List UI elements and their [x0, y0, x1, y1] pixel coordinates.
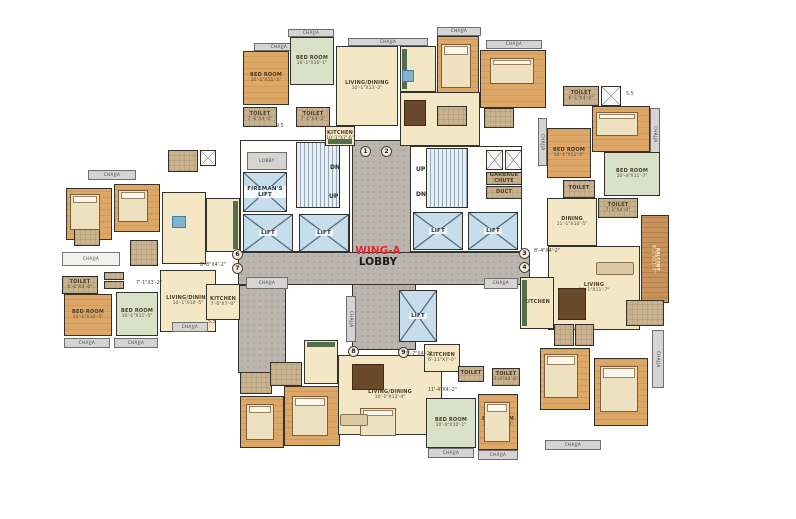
- chajja: CHAJJA: [114, 338, 158, 348]
- chajja: CHAJJA: [484, 278, 518, 289]
- chajja: CHAJJA: [64, 338, 110, 348]
- chajja: CHAJJA: [428, 448, 474, 458]
- dress: [626, 300, 664, 326]
- chajja: CHAJJA: [172, 322, 208, 332]
- flat-entrance-marker: 1: [360, 146, 371, 157]
- kitchen: KITCHEN10'-1"X7'-6": [325, 126, 355, 146]
- wardrobe: [104, 281, 124, 289]
- sofa-icon: [340, 414, 368, 426]
- toilet: TOILET7'-0"X4'-0": [492, 368, 520, 386]
- dimension-label: 8'-8"X4'-2": [200, 263, 226, 268]
- bedroom: BED ROOM10'-1"X11'-5": [243, 51, 289, 105]
- flat-entrance-marker: 3: [519, 248, 530, 259]
- lift-1: LIFT: [243, 214, 293, 252]
- chajja: CHAJJA: [652, 330, 664, 388]
- duct-box: [505, 150, 522, 170]
- duct-box: [200, 150, 216, 166]
- btable-icon: [402, 70, 414, 82]
- lift-5: LIFT: [399, 290, 437, 342]
- staircase-right: [426, 148, 468, 208]
- toilet: [554, 324, 574, 346]
- sofa-icon: [596, 262, 634, 275]
- bed-icon: [600, 366, 638, 412]
- flat-entrance-marker: 6: [232, 249, 243, 260]
- kitchen: KITCHEN6'-11"X7'-0": [424, 344, 460, 372]
- dining: DINING11'-1"X10'-5": [547, 198, 597, 246]
- toilet: [74, 228, 100, 246]
- chajja: CHAJJA: [538, 118, 547, 166]
- btable-icon: [172, 216, 186, 228]
- toilet: TOILET7'-1"X4'-0": [598, 198, 638, 218]
- chajja: CHAJJA: [545, 440, 601, 450]
- toilet: TOILET7'-6"X4'-0": [243, 107, 277, 127]
- dimension-label: 5.5: [626, 92, 634, 97]
- kitchen: [206, 198, 240, 252]
- kitchen-counter: [522, 280, 527, 326]
- duct-box: [486, 150, 503, 170]
- lift-4: LIFT: [468, 212, 518, 250]
- kitchen: [400, 46, 436, 92]
- duct-box: [601, 86, 621, 106]
- chajja: CHAJJA: [486, 40, 542, 49]
- dimension-label: 8'-4"X4'-2": [534, 249, 560, 254]
- garbage-chute: GARBAGE CHUTE: [486, 172, 522, 185]
- wardrobe: [104, 272, 124, 280]
- chajja: CHAJJA: [246, 277, 288, 289]
- chajja: CHAJJA: [88, 170, 136, 180]
- floor-plan: LOBBYFIREMAN'S LIFTLIFTLIFTGARBAGE CHUTE…: [0, 0, 796, 519]
- dimension-label: UP: [329, 193, 338, 200]
- chajja: CHAJJA: [478, 450, 518, 460]
- entrance-lobby: [168, 150, 198, 172]
- bed-icon: [490, 58, 534, 84]
- wing-title: WING-A LOBBY: [352, 246, 404, 268]
- dimension-label: 9.5: [276, 124, 284, 129]
- toilet: TOILET6'-1"X4'-0": [563, 86, 599, 106]
- dimension-label: 5'-7"X4'-2": [406, 352, 432, 357]
- table-icon: [404, 100, 426, 126]
- bedroom: BED ROOM10'-1"X11'-5": [547, 128, 591, 178]
- flat-entrance-marker: 8: [348, 346, 359, 357]
- living-dining: LIVING/DINING10'-1"X13'-2": [336, 46, 398, 126]
- lobby-box: LOBBY: [247, 152, 287, 170]
- table-icon: [558, 288, 586, 320]
- chajja: CHAJJA: [288, 29, 334, 37]
- kitchen: [304, 340, 338, 384]
- bed-icon: [484, 402, 510, 442]
- lift-2: LIFT: [299, 214, 349, 252]
- bedroom: BED ROOM10'-4"X11'-7": [604, 152, 660, 196]
- kitchen: KITCHEN: [520, 277, 554, 329]
- flat-entrance-marker: 4: [519, 262, 530, 273]
- chajja: CHAJJA: [346, 296, 356, 342]
- kitchen-counter: [402, 49, 407, 89]
- toilet: [130, 240, 158, 266]
- balcony: BALCONY8'-1"X11'-7": [641, 215, 669, 303]
- bed-icon: [441, 44, 471, 88]
- kitchen: KITCHEN7'-6"X7'-0": [206, 284, 240, 320]
- lift-3: LIFT: [413, 212, 463, 250]
- dimension-label: UP: [416, 166, 425, 173]
- toilet: TOILET7'-1"X4'-2": [296, 107, 330, 127]
- dimension-label: 5.5: [208, 320, 216, 325]
- toilet: TOILET: [458, 366, 484, 382]
- flat-entrance-marker: 2: [381, 146, 392, 157]
- bed-icon: [596, 112, 638, 136]
- kitchen-counter: [307, 342, 335, 347]
- bedroom: BED ROOM10'-1"X10'-5": [64, 294, 112, 336]
- bed-icon: [292, 396, 328, 436]
- flat-entrance-marker: 7: [232, 263, 243, 274]
- chajja: CHAJJA: [348, 38, 428, 46]
- wing-lobby-label: LOBBY: [352, 257, 404, 268]
- chajja: CHAJJA: [62, 252, 120, 266]
- dimension-label: 7'-1"X3'-2": [136, 281, 162, 286]
- dimension-label: 11'-4"X4'-2": [428, 388, 457, 393]
- chajja: CHAJJA: [437, 27, 481, 36]
- bed-icon: [544, 354, 578, 398]
- bed-icon: [118, 190, 148, 222]
- kitchen-counter: [328, 139, 352, 144]
- duct: DUCT: [486, 186, 522, 199]
- table-icon: [352, 364, 384, 390]
- firemans-lift: FIREMAN'S LIFT: [243, 172, 287, 212]
- dimension-label: DN: [330, 164, 340, 171]
- toilet: [437, 106, 467, 126]
- living: [162, 192, 206, 264]
- bedroom: BED ROOM10'-1"X10'-1": [290, 37, 334, 85]
- bath: [270, 362, 302, 386]
- lobby-corridor-branch: [238, 285, 286, 373]
- toilet: TOILET6'-0"X4'-0": [62, 276, 98, 294]
- bedroom: BED ROOM10'-1"X11'-5": [116, 292, 158, 336]
- bed-icon: [70, 194, 100, 230]
- toilet: [484, 108, 514, 128]
- bedroom: BED ROOM10'-4"X10'-1": [426, 398, 476, 448]
- toilet: TOILET: [563, 180, 595, 198]
- dimension-label: DN: [416, 191, 426, 198]
- kitchen-counter: [233, 201, 238, 249]
- bed-icon: [246, 404, 274, 440]
- toilet: [240, 372, 272, 394]
- toilet: [575, 324, 594, 346]
